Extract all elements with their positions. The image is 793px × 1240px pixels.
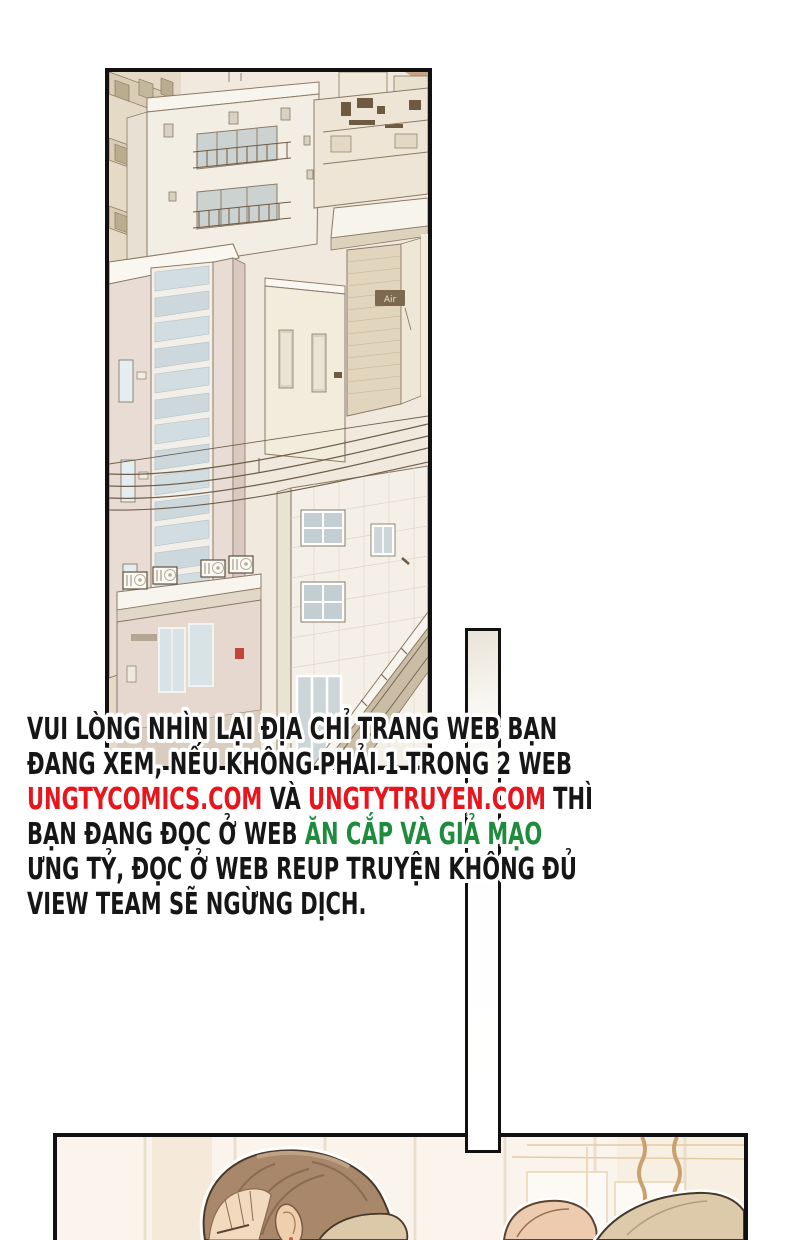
city-illustration: Air bbox=[109, 72, 428, 766]
warning-segment: ƯNG TỶ, ĐỌC Ở WEB REUP TRUYỆN KHÔNG ĐỦ bbox=[27, 852, 577, 887]
scene-illustration bbox=[57, 1137, 744, 1240]
warning-line: BẠN ĐANG ĐỌC Ở WEB ĂN CẮP VÀ GIẢ MẠO bbox=[27, 817, 593, 852]
brick-tower: Air bbox=[347, 234, 428, 416]
warning-text: VUI LÒNG NHÌN LẠI ĐỊA CHỈ TRANG WEB BẠNĐ… bbox=[27, 712, 793, 922]
air-sign-label: Air bbox=[384, 295, 397, 305]
warning-segment: VIEW TEAM SẼ NGỪNG DỊCH. bbox=[27, 887, 366, 922]
warning-line: UNGTYCOMICS.COM VÀ UNGTYTRUYEN.COM THÌ bbox=[27, 782, 593, 817]
warning-line: VUI LÒNG NHÌN LẠI ĐỊA CHỈ TRANG WEB BẠN bbox=[27, 712, 593, 747]
warning-segment: ĐANG XEM, NẾU KHÔNG PHẢI 1 TRONG 2 WEB bbox=[27, 747, 572, 782]
warning-segment: BẠN ĐANG ĐỌC Ở WEB bbox=[27, 817, 305, 852]
warning-segment: VUI LÒNG NHÌN LẠI ĐỊA CHỈ TRANG WEB BẠN bbox=[27, 712, 557, 747]
warning-highlight: ĂN CẮP VÀ GIẢ MẠO bbox=[305, 817, 543, 852]
warning-segment: VÀ bbox=[262, 782, 308, 817]
scene-panel bbox=[53, 1133, 748, 1240]
site-url: UNGTYTRUYEN.COM bbox=[308, 782, 546, 817]
warning-line: VIEW TEAM SẼ NGỪNG DỊCH. bbox=[27, 887, 593, 922]
city-panel: Air bbox=[105, 68, 432, 770]
warning-line: ƯNG TỶ, ĐỌC Ở WEB REUP TRUYỆN KHÔNG ĐỦ bbox=[27, 852, 593, 887]
warning-segment: THÌ bbox=[546, 782, 593, 817]
comic-page: { "page": { "background": "#ffffff", "wi… bbox=[0, 0, 793, 1240]
warning-line: ĐANG XEM, NẾU KHÔNG PHẢI 1 TRONG 2 WEB bbox=[27, 747, 593, 782]
site-url: UNGTYCOMICS.COM bbox=[27, 782, 262, 817]
